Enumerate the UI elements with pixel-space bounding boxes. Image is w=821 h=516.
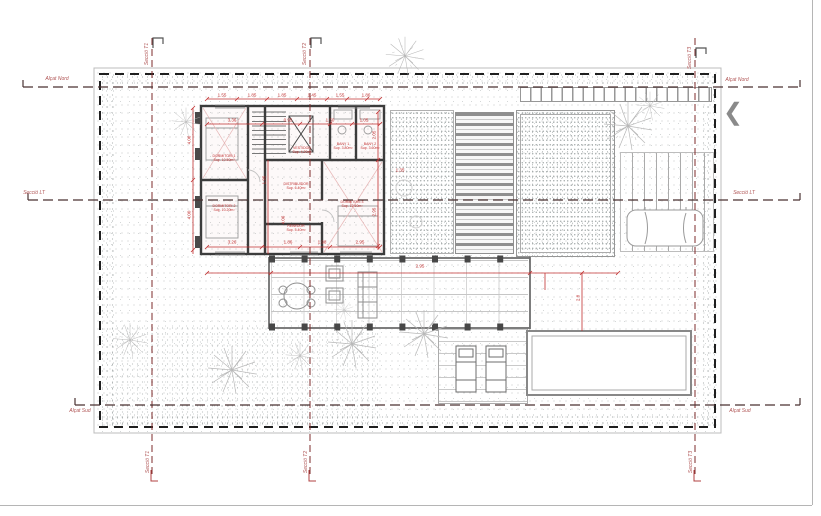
tree-icon bbox=[109, 319, 151, 361]
room-label: VESTIDORSup. 4.20m² bbox=[292, 146, 311, 154]
dimension-label: 1.55 bbox=[218, 93, 227, 98]
dimension-label: 1.86 bbox=[362, 93, 371, 98]
axis-label: Secció LT bbox=[23, 190, 45, 196]
section-label: Secció T1 bbox=[144, 43, 150, 65]
furniture bbox=[206, 110, 422, 246]
tree-icon bbox=[282, 338, 318, 374]
room-label: DORMITORI 1Sup. 10.50m² bbox=[213, 154, 236, 162]
dimension-label: 0.95 bbox=[284, 118, 293, 123]
dimension-label: 4.00 bbox=[187, 211, 192, 220]
dimension-label: 1.85 bbox=[278, 93, 287, 98]
dimension-label: 2.05 bbox=[372, 131, 377, 140]
dimension-label: 1.95 bbox=[262, 176, 267, 185]
dimension-label: 1.85 bbox=[248, 93, 257, 98]
axis-label: Alçat Nord bbox=[725, 77, 748, 83]
dimension-label: 1.05 bbox=[360, 118, 369, 123]
swimming-pool bbox=[527, 331, 691, 395]
section-label: Secció T2 bbox=[303, 451, 309, 473]
terrace-furniture bbox=[279, 266, 377, 318]
dimension-label: 2.95 bbox=[416, 264, 425, 269]
section-label: Secció T2 bbox=[302, 43, 308, 65]
dimension-lines bbox=[191, 97, 620, 331]
room-label: DISTRIBUÏDORSup. 6.40m² bbox=[283, 182, 308, 190]
sun-loungers bbox=[456, 346, 506, 392]
previous-arrow-icon[interactable]: ❮ bbox=[722, 100, 744, 126]
dimension-label: 2.95 bbox=[356, 240, 365, 245]
tree-icon bbox=[168, 104, 204, 140]
tree-icon bbox=[394, 304, 454, 364]
dimension-label: 2.95 bbox=[372, 208, 377, 217]
dimension-label: 2.8 bbox=[576, 295, 581, 301]
dimension-label: 3.36 bbox=[228, 118, 237, 123]
tree-icon bbox=[381, 32, 429, 80]
tree-icon bbox=[332, 298, 356, 322]
section-label: Secció T3 bbox=[687, 47, 693, 69]
dimension-label: 1.98 bbox=[318, 240, 327, 245]
room-label: REBEDORSup. 5.40m² bbox=[286, 224, 305, 232]
axis-label: Alçat Nord bbox=[45, 76, 68, 82]
dimension-label: 1.50 bbox=[326, 118, 335, 123]
axis-label: Secció LT bbox=[733, 190, 755, 196]
floor-plan-sheet: Alçat NordAlçat NordSecció LTSecció LTAl… bbox=[0, 0, 821, 516]
dimension-label: 1.45 bbox=[308, 93, 317, 98]
dimension-label: 4.06 bbox=[281, 216, 286, 225]
tree-icon bbox=[632, 88, 668, 124]
dimension-label: 1.86 bbox=[284, 240, 293, 245]
tree-icon bbox=[322, 314, 382, 374]
axis-label: Alçat Sud bbox=[69, 408, 90, 414]
section-label: Secció T1 bbox=[145, 451, 151, 473]
room-label: DORMITORI 3Sup. 12.60m² bbox=[341, 200, 364, 208]
dimension-label: 3.26 bbox=[228, 240, 237, 245]
car bbox=[627, 207, 703, 246]
dimension-label: 1.35 bbox=[396, 168, 405, 173]
section-label: Secció T3 bbox=[688, 451, 694, 473]
axis-label: Alçat Sud bbox=[729, 408, 750, 414]
room-label: DORMITORI 2Sup. 10.20m² bbox=[213, 204, 236, 212]
room-label: BANY 2Sup. 3.60m² bbox=[360, 142, 379, 150]
dimension-label: 1.55 bbox=[336, 93, 345, 98]
tree-icon bbox=[202, 340, 262, 400]
room-label: BANY 1Sup. 3.80m² bbox=[333, 142, 352, 150]
